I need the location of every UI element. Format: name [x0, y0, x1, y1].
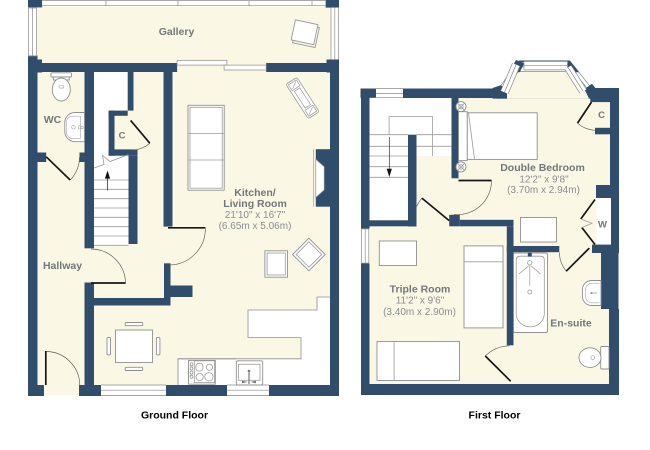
svg-text:WC: WC	[44, 114, 62, 126]
svg-text:Hallway: Hallway	[43, 260, 82, 272]
svg-text:W: W	[598, 219, 607, 230]
svg-text:21'10" x 16'7": 21'10" x 16'7"	[225, 210, 286, 221]
svg-text:(6.65m x 5.06m): (6.65m x 5.06m)	[219, 221, 292, 232]
svg-text:C: C	[598, 110, 605, 121]
svg-text:Living Room: Living Room	[223, 198, 287, 210]
svg-text:(3.40m x 2.90m): (3.40m x 2.90m)	[383, 307, 456, 318]
svg-text:First Floor: First Floor	[469, 410, 521, 422]
svg-text:C: C	[119, 131, 126, 142]
svg-text:11'2" x 9'6": 11'2" x 9'6"	[396, 295, 445, 306]
svg-text:12'2" x 9'8": 12'2" x 9'8"	[519, 174, 569, 185]
svg-text:Kitchen/: Kitchen/	[234, 187, 276, 199]
svg-text:En-suite: En-suite	[550, 317, 592, 329]
svg-text:(3.70m x 2.94m): (3.70m x 2.94m)	[507, 185, 580, 196]
svg-text:Double Bedroom: Double Bedroom	[500, 162, 585, 174]
svg-text:Triple Room: Triple Room	[390, 283, 451, 295]
svg-text:Gallery: Gallery	[159, 26, 195, 38]
svg-text:Ground Floor: Ground Floor	[141, 410, 208, 422]
